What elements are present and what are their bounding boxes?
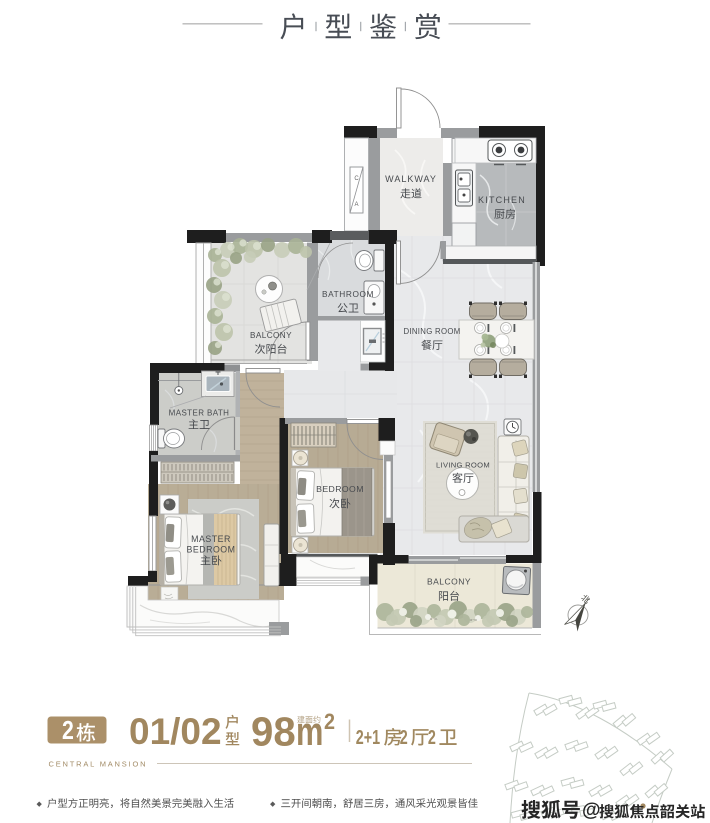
svg-text:o~o.: o~o. <box>430 616 438 621</box>
svg-text:2+1: 2+1 <box>356 725 380 748</box>
svg-text:C: C <box>354 176 359 182</box>
svg-text:KITCHEN: KITCHEN <box>478 195 526 205</box>
svg-text:BATHROOM: BATHROOM <box>322 289 374 299</box>
svg-text:2: 2 <box>62 716 74 746</box>
svg-text:BALCONY: BALCONY <box>250 331 292 340</box>
svg-text:01/02: 01/02 <box>129 711 222 752</box>
svg-text:o~o: o~o <box>470 617 478 622</box>
svg-text:98: 98 <box>251 708 296 754</box>
svg-text:WALKWAY: WALKWAY <box>385 174 437 184</box>
svg-text:m: m <box>296 709 323 754</box>
svg-text:BALCONY: BALCONY <box>427 577 471 587</box>
svg-text:MASTER: MASTER <box>191 534 231 544</box>
svg-text:2: 2 <box>400 725 408 748</box>
svg-text:CENTRAL MANSION: CENTRAL MANSION <box>49 760 148 769</box>
svg-text:DINING ROOM: DINING ROOM <box>403 327 460 336</box>
svg-text:◆: ◆ <box>270 801 276 808</box>
svg-text:A: A <box>354 202 358 208</box>
svg-text:@: @ <box>582 800 601 821</box>
svg-text:BEDROOM: BEDROOM <box>316 484 364 494</box>
svg-text:BEDROOM: BEDROOM <box>187 545 236 555</box>
svg-text:2: 2 <box>324 710 335 734</box>
svg-text:◆: ◆ <box>37 801 43 808</box>
svg-text:MASTER BATH: MASTER BATH <box>169 409 230 418</box>
svg-text:2: 2 <box>428 725 436 748</box>
svg-text:LIVING ROOM: LIVING ROOM <box>436 461 490 470</box>
